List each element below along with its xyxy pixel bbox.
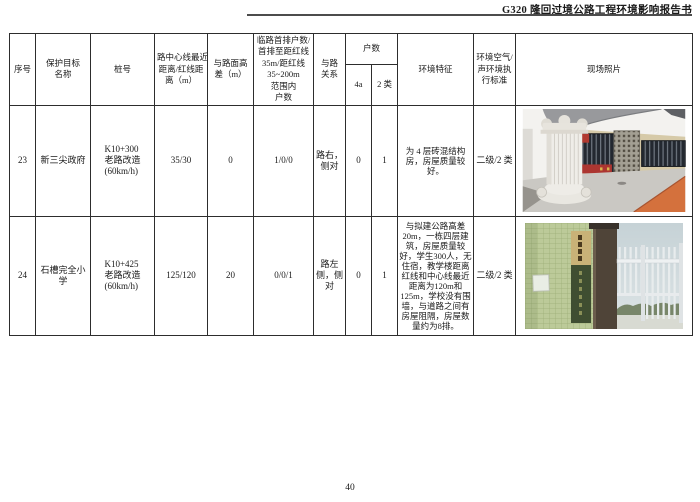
cell-seq: 23 — [10, 105, 36, 216]
cell-standard: 二级/2 类 — [474, 216, 516, 335]
cell-stake: K10+425 老路改造 (60km/h) — [91, 216, 155, 335]
col-header-household-count: 户数 — [346, 34, 398, 65]
cell-height-diff: 0 — [208, 105, 254, 216]
cell-env-features: 为 4 层砖混结构房，房屋质量较好。 — [398, 105, 474, 216]
cell-target-name: 石槽完全小学 — [36, 216, 91, 335]
col-header-4a: 4a — [346, 64, 372, 105]
cell-2class: 1 — [372, 105, 398, 216]
cell-road-relation: 路右，侧对 — [314, 105, 346, 216]
col-header-center-dist: 路中心线最近 距离/红线距 离（m） — [155, 34, 208, 106]
col-header-height-diff: 与路面高 差（m） — [208, 34, 254, 106]
table-row-23: 23 新三尖政府 K10+300 老路改造 (60km/h) 35/30 0 1… — [10, 105, 693, 216]
protection-targets-table: 序号 保护目标 名称 桩号 路中心线最近 距离/红线距 离（m） 与路面高 差（… — [9, 33, 693, 336]
col-header-seq: 序号 — [10, 34, 36, 106]
col-header-standard: 环境空气/ 声环境执 行标准 — [474, 34, 516, 106]
site-photo-school-gate — [516, 216, 693, 335]
cell-height-diff: 20 — [208, 216, 254, 335]
col-header-target-name: 保护目标 名称 — [36, 34, 91, 106]
cell-stake: K10+300 老路改造 (60km/h) — [91, 105, 155, 216]
cell-target-name: 新三尖政府 — [36, 105, 91, 216]
cell-env-features: 与拟建公路高差20m，一栋四层建筑，房屋质量较好，学生300人，无住宿，教学楼距… — [398, 216, 474, 335]
col-header-photo: 现场照片 — [516, 34, 693, 106]
government-building-photo-graphic — [521, 109, 687, 212]
cell-seq: 24 — [10, 216, 36, 335]
cell-4a: 0 — [346, 216, 372, 335]
cell-road-relation: 路左侧，侧对 — [314, 216, 346, 335]
col-header-env-features: 环境特征 — [398, 34, 474, 106]
col-header-front-households: 临路首排户数/ 首排至距红线 35m/距红线 35~200m 范围内 户数 — [254, 34, 314, 106]
page-number: 40 — [0, 483, 700, 493]
col-header-stake: 桩号 — [91, 34, 155, 106]
cell-center-dist: 35/30 — [155, 105, 208, 216]
cell-2class: 1 — [372, 216, 398, 335]
cell-standard: 二级/2 类 — [474, 105, 516, 216]
school-gate-photo-graphic — [525, 222, 683, 330]
col-header-road-relation: 与路 关系 — [314, 34, 346, 106]
cell-front-households: 0/0/1 — [254, 216, 314, 335]
cell-front-households: 1/0/0 — [254, 105, 314, 216]
table-row-24: 24 石槽完全小学 K10+425 老路改造 (60km/h) 125/120 … — [10, 216, 693, 335]
site-photo-government-building — [516, 105, 693, 216]
cell-4a: 0 — [346, 105, 372, 216]
header-rule — [247, 14, 692, 16]
cell-center-dist: 125/120 — [155, 216, 208, 335]
col-header-2class: 2 类 — [372, 64, 398, 105]
